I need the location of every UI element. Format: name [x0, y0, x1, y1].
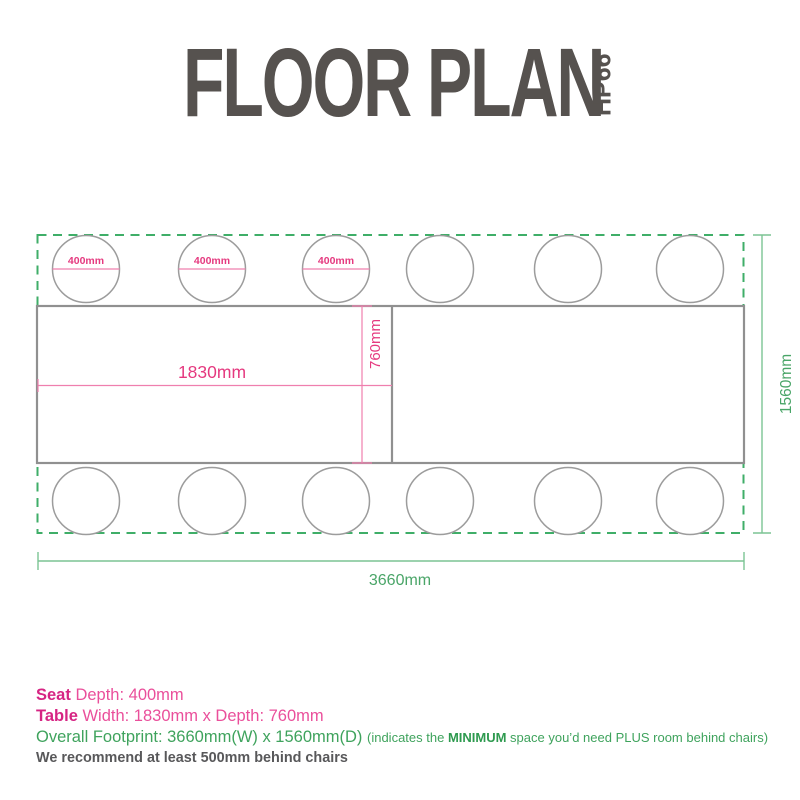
spec-seat-label: Seat: [36, 686, 71, 704]
chair: [407, 236, 474, 303]
spec-table-label: Table: [36, 707, 78, 725]
table-outline: [37, 306, 744, 463]
chair: [657, 468, 724, 535]
spec-seat-depth: Seat Depth: 400mm: [36, 686, 184, 705]
spec-overall-note-pre: (indicates the: [367, 730, 448, 745]
chair: [535, 468, 602, 535]
spec-table-value: Width: 1830mm x Depth: 760mm: [78, 707, 324, 725]
spec-overall-note-minimum: MINIMUM: [448, 730, 507, 745]
chair: [535, 236, 602, 303]
spec-overall-note-post: space you’d need PLUS room behind chairs…: [506, 730, 768, 745]
overall-width-label: 3660mm: [369, 572, 431, 589]
chair: [303, 468, 370, 535]
chair: [407, 468, 474, 535]
table-width-label: 1830mm: [178, 362, 246, 382]
seat-dim-label: 400mm: [194, 255, 230, 267]
chairs-top-row: [53, 236, 724, 303]
chair: [179, 468, 246, 535]
spec-overall-main: Overall Footprint: 3660mm(W) x 1560mm(D): [36, 728, 367, 746]
spec-overall-footprint: Overall Footprint: 3660mm(W) x 1560mm(D)…: [36, 728, 768, 747]
seat-dim-label: 400mm: [318, 255, 354, 267]
overall-width-dim: [38, 552, 744, 570]
chair: [657, 236, 724, 303]
seat-dim-label: 400mm: [68, 255, 104, 267]
spec-seat-value: Depth: 400mm: [71, 686, 184, 704]
chairs-bottom-row: [53, 468, 724, 535]
overall-depth-label: 1560mm: [778, 354, 795, 414]
table-depth-label: 760mm: [367, 319, 384, 369]
spec-table-size: Table Width: 1830mm x Depth: 760mm: [36, 707, 324, 726]
floor-plan-diagram: 400mm 400mm 400mm 1830mm 760mm 1560mm: [0, 0, 800, 800]
floor-plan-page: FLOOR PLAN HP66: [0, 0, 800, 800]
spec-recommendation: We recommend at least 500mm behind chair…: [36, 749, 348, 766]
overall-depth-dim: [753, 235, 771, 533]
chair: [53, 468, 120, 535]
